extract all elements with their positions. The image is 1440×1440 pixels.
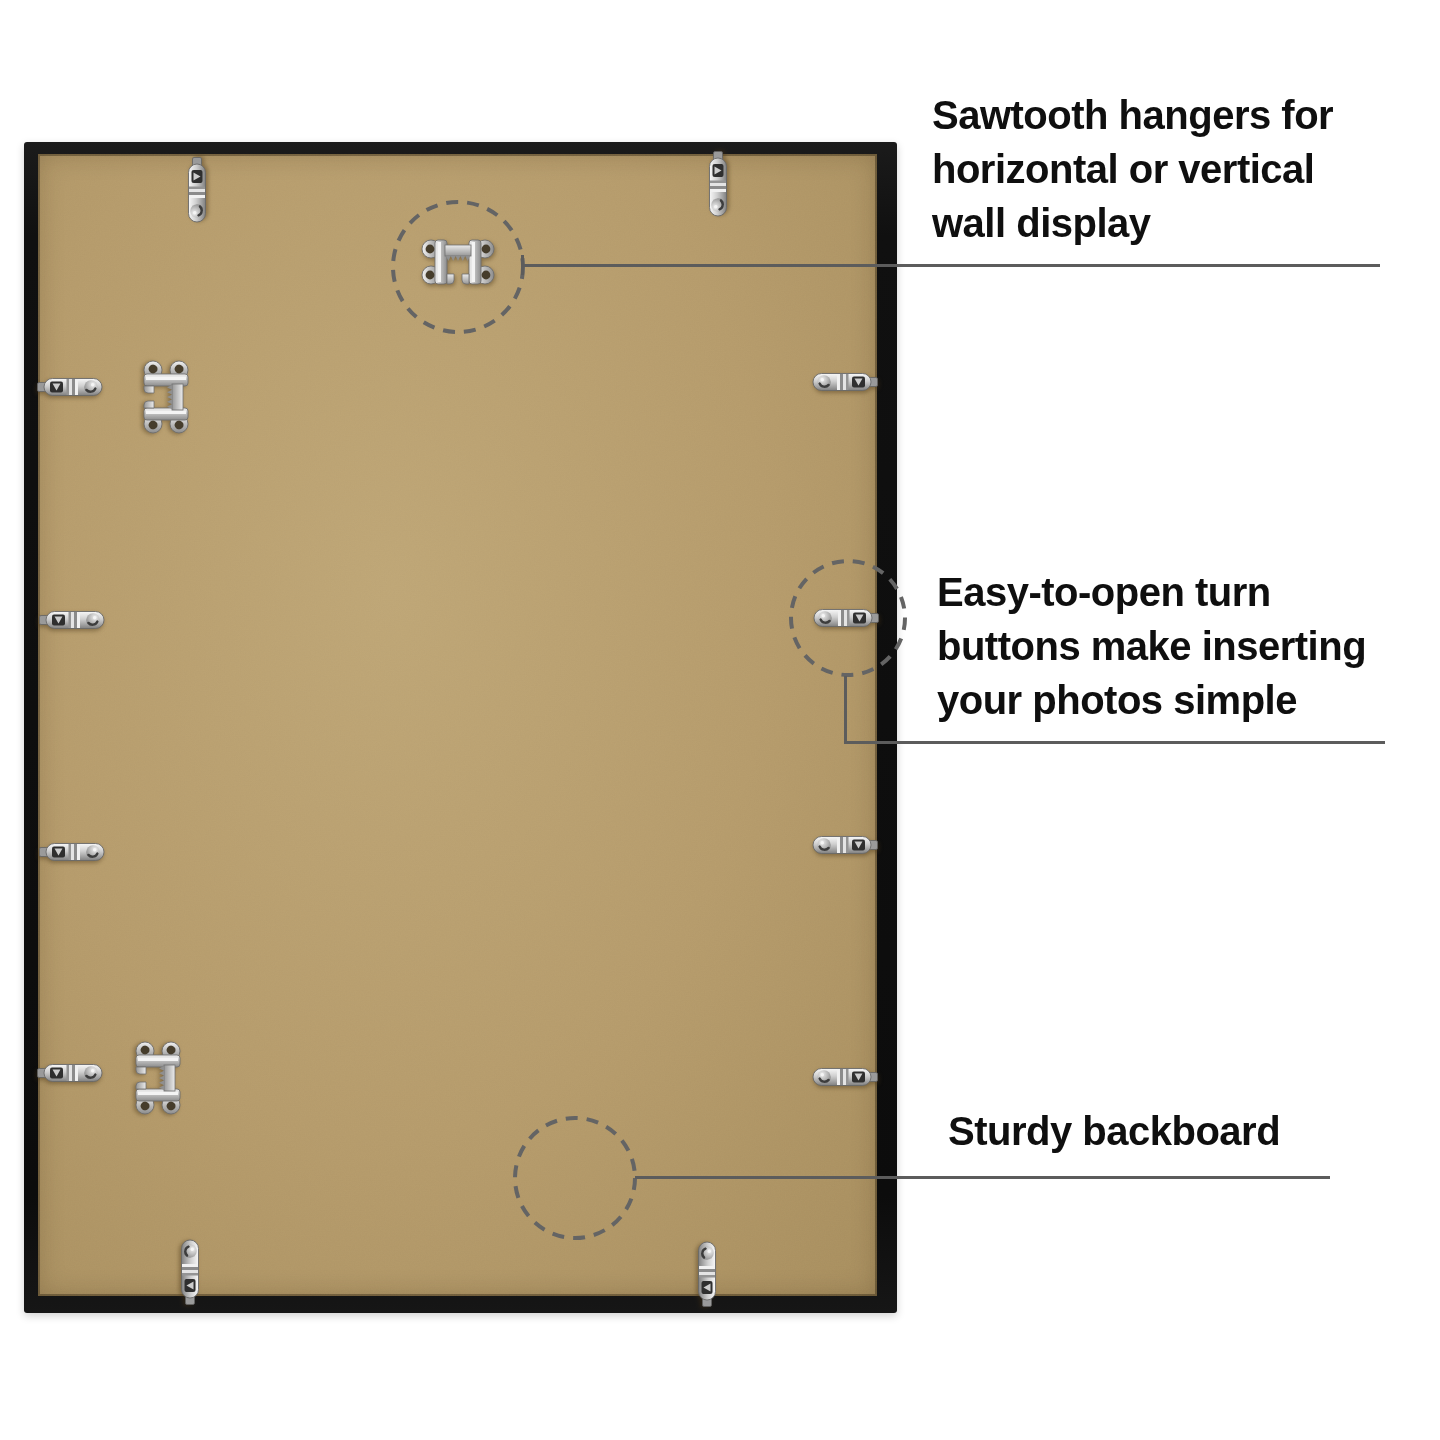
annotation-text-line: Sturdy backboard bbox=[948, 1104, 1280, 1158]
turn-button bbox=[185, 157, 209, 223]
callout-line-backboard bbox=[635, 1176, 1330, 1179]
turn-button bbox=[37, 375, 103, 399]
callout-line-turn-buttons bbox=[844, 741, 1385, 744]
annotation-text-line: buttons make inserting bbox=[937, 619, 1366, 673]
callout-line-turn-buttons-vertical bbox=[844, 676, 847, 744]
product-annotation-image: Sawtooth hangers for horizontal or verti… bbox=[0, 0, 1440, 1440]
annotation-text-line: Easy-to-open turn bbox=[937, 565, 1366, 619]
turn-button bbox=[695, 1241, 719, 1307]
sawtooth-hanger bbox=[131, 1041, 185, 1115]
annotation-sawtooth-hangers: Sawtooth hangers for horizontal or verti… bbox=[932, 88, 1333, 250]
turn-button bbox=[39, 608, 105, 632]
annotation-text-line: your photos simple bbox=[937, 673, 1366, 727]
annotation-backboard: Sturdy backboard bbox=[948, 1104, 1280, 1158]
turn-button bbox=[812, 833, 878, 857]
turn-button bbox=[178, 1239, 202, 1305]
annotation-text-line: horizontal or vertical bbox=[932, 142, 1333, 196]
callout-circle-turn-button bbox=[787, 557, 909, 679]
callout-line-sawtooth bbox=[523, 264, 1380, 267]
turn-button bbox=[812, 370, 878, 394]
sawtooth-hanger bbox=[139, 360, 193, 434]
callout-circle-sawtooth bbox=[389, 198, 527, 336]
annotation-text-line: wall display bbox=[932, 196, 1333, 250]
annotation-text-line: Sawtooth hangers for bbox=[932, 88, 1333, 142]
callout-circle-backboard bbox=[511, 1114, 639, 1242]
turn-button bbox=[39, 840, 105, 864]
turn-button bbox=[706, 151, 730, 217]
turn-button bbox=[37, 1061, 103, 1085]
annotation-turn-buttons: Easy-to-open turn buttons make inserting… bbox=[937, 565, 1366, 727]
turn-button bbox=[812, 1065, 878, 1089]
